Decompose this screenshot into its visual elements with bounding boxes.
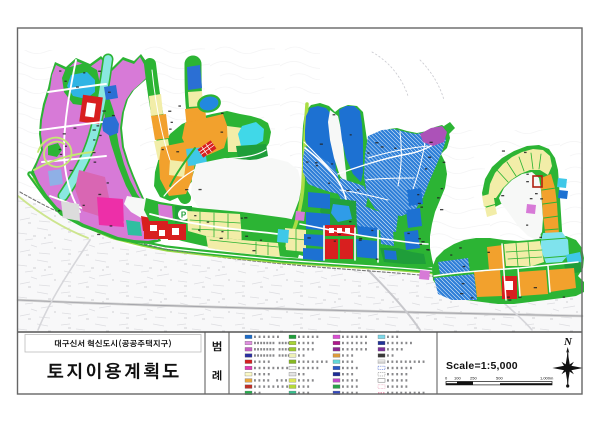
- svg-text:500: 500: [496, 376, 503, 381]
- svg-text:100: 100: [454, 376, 461, 381]
- svg-text:1,000m: 1,000m: [540, 376, 554, 381]
- svg-text:250: 250: [470, 376, 477, 381]
- svg-text:N: N: [563, 336, 573, 348]
- svg-text:P: P: [181, 211, 187, 220]
- svg-text:Scale=1:5,000: Scale=1:5,000: [446, 360, 518, 372]
